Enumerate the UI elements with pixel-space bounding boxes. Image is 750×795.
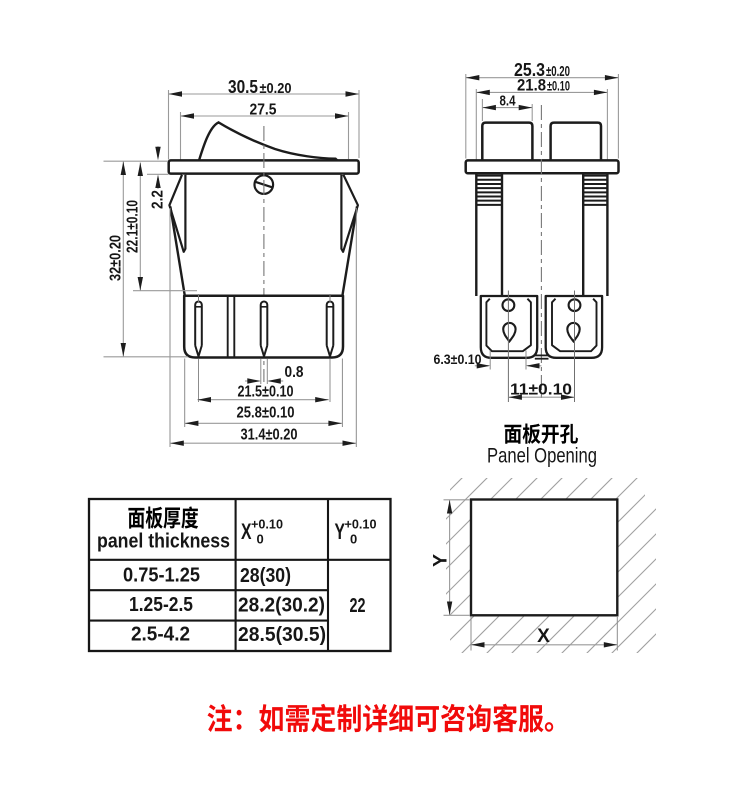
svg-text:30.5: 30.5: [228, 76, 258, 97]
svg-text:2.2: 2.2: [150, 190, 167, 209]
svg-text:panel thickness: panel thickness: [97, 531, 230, 553]
svg-text:8.4: 8.4: [500, 94, 516, 110]
svg-text:±0.10: ±0.10: [547, 78, 570, 94]
svg-text:+0.10: +0.10: [345, 517, 377, 532]
svg-text:25.8±0.10: 25.8±0.10: [237, 405, 295, 422]
svg-text:22.1±0.10: 22.1±0.10: [125, 200, 142, 253]
svg-text:21.8: 21.8: [517, 77, 546, 95]
svg-text:32±0.20: 32±0.20: [108, 235, 125, 281]
svg-text:22: 22: [350, 595, 366, 617]
svg-text:2.5-4.2: 2.5-4.2: [131, 624, 190, 646]
svg-text:28.2(30.2): 28.2(30.2): [238, 595, 325, 617]
svg-text:0.8: 0.8: [285, 364, 304, 381]
svg-text:11±0.10: 11±0.10: [510, 381, 572, 398]
svg-text:X: X: [537, 626, 550, 647]
svg-text:21.5±0.10: 21.5±0.10: [238, 384, 294, 401]
svg-text:6.3±0.10: 6.3±0.10: [434, 352, 482, 368]
svg-text:28(30): 28(30): [240, 565, 291, 587]
svg-text:0: 0: [350, 532, 357, 547]
svg-text:1.25-2.5: 1.25-2.5: [129, 594, 193, 616]
svg-text:+0.10: +0.10: [251, 517, 283, 532]
svg-text:Panel Opening: Panel Opening: [487, 445, 597, 468]
svg-text:0: 0: [257, 532, 264, 547]
svg-text:±0.20: ±0.20: [260, 81, 292, 97]
svg-text:28.5(30.5): 28.5(30.5): [238, 624, 326, 646]
svg-text:Y: Y: [430, 554, 452, 567]
svg-text:31.4±0.20: 31.4±0.20: [241, 427, 298, 444]
svg-text:0.75-1.25: 0.75-1.25: [123, 565, 200, 587]
svg-text:27.5: 27.5: [250, 102, 277, 119]
